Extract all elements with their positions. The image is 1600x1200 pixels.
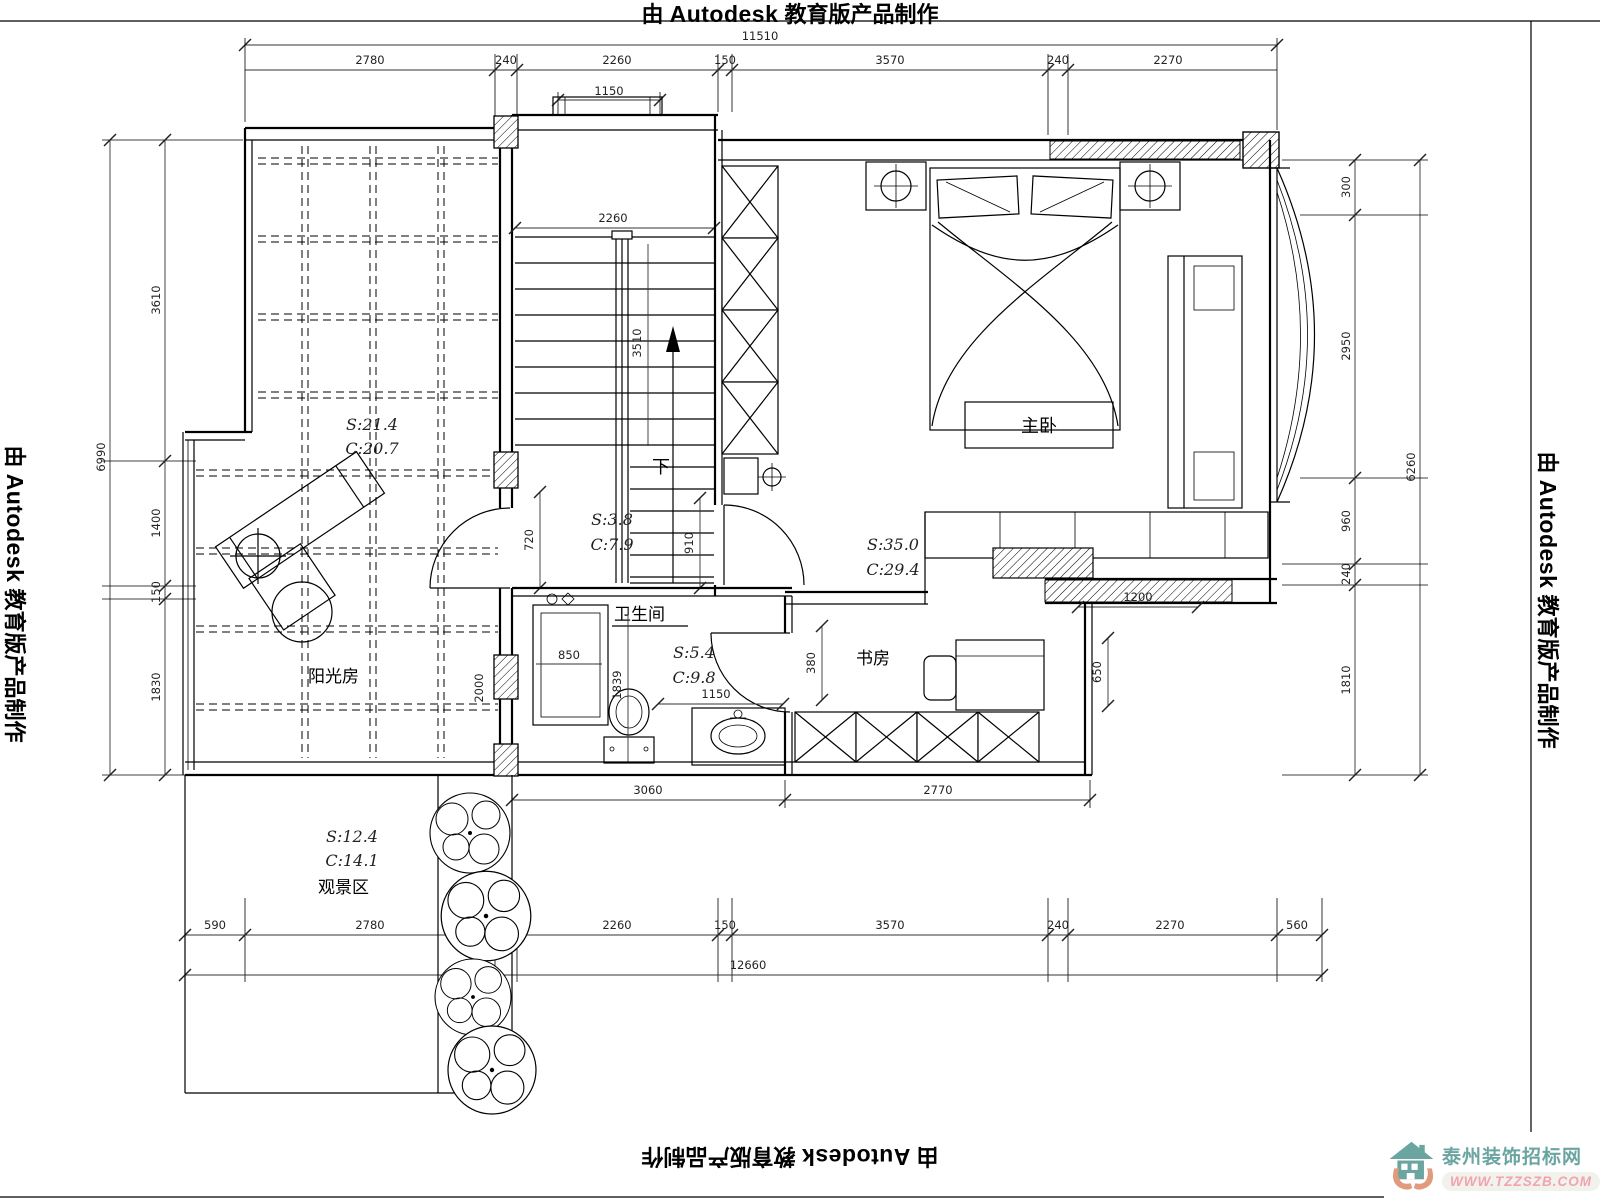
dim-study-door: 380 — [804, 652, 818, 674]
stair-treads — [515, 231, 714, 583]
room-sunroom-label: 阳光房 — [308, 667, 359, 686]
room-master-label: 主卧 — [1021, 416, 1057, 436]
dim-left-total: 6990 — [94, 442, 108, 471]
dim-right-0: 300 — [1339, 176, 1353, 198]
dim-hall-right: 910 — [682, 532, 696, 554]
edu-stamp-bottom: 由 Autodesk 教育版产品制作 — [641, 1142, 938, 1174]
room-study-label: 书房 — [856, 649, 890, 668]
dim-bottom-8: 560 — [1286, 918, 1308, 932]
dim-top-6: 2270 — [1153, 53, 1182, 67]
nightstand-right — [1120, 162, 1180, 210]
room-stairwell-area: S:3.8 — [591, 510, 633, 529]
dim-study-right: 650 — [1090, 661, 1104, 683]
dim-left-0: 3610 — [149, 285, 163, 314]
bay-window — [1270, 140, 1315, 603]
room-scenic-area: S:12.4 C:14.1 观景区 — [185, 775, 536, 1114]
dim-left-2: 150 — [149, 581, 163, 603]
frame-border — [0, 21, 1600, 1197]
dim-bath-door: 1150 — [701, 687, 730, 701]
dim-stair-w: 2260 — [598, 211, 627, 225]
dim-bottom: 590 2780 240 2260 150 3570 240 2270 560 … — [179, 898, 1328, 982]
edu-stamp-right: 由 Autodesk 教育版产品制作 — [1533, 451, 1565, 748]
bedroom-door-arc — [724, 505, 804, 585]
dim-bottom-3: 2260 — [602, 918, 631, 932]
edu-stamp-left: 由 Autodesk 教育版产品制作 — [0, 445, 32, 742]
dim-mid-0: 3060 — [633, 783, 662, 797]
dim-stair-h: 3510 — [630, 328, 644, 357]
dim-mid-bottom: 3060 2770 — [506, 780, 1096, 808]
edu-stamp-suffix: 教育版产品制作 — [785, 2, 939, 27]
dim-top-total: 11510 — [742, 29, 779, 43]
room-scenic-area-area: S:12.4 — [326, 827, 378, 846]
site-logo: 泰州装饰招标网 WWW.TZZSZB.COM — [1384, 1132, 1600, 1200]
floor-plan: 11510 2780 240 2260 150 3570 240 2270 11… — [0, 0, 1600, 1200]
edu-stamp-brand: Autodesk — [670, 1, 779, 27]
room-bathroom-label: 卫生间 — [614, 605, 665, 624]
dim-bottom-7: 2270 — [1155, 918, 1184, 932]
room-scenic-area-circ: C:14.1 — [325, 851, 378, 870]
edu-stamp-prefix: 由 — [641, 2, 663, 27]
room-bathroom-area: S:5.4 — [673, 643, 715, 662]
dim-bottom-5: 3570 — [875, 918, 904, 932]
dim-right-total: 6260 — [1404, 452, 1418, 481]
sink — [692, 708, 785, 765]
room-sunroom: S:21.4 C:20.7 阳光房 — [183, 115, 512, 775]
dim-bath-shower: 850 — [558, 648, 580, 662]
dim-top: 11510 2780 240 2260 150 3570 240 2270 11… — [239, 29, 1283, 135]
dim-bottom-6: 240 — [1047, 918, 1069, 932]
room-sunroom-area: S:21.4 — [346, 415, 398, 434]
logo-house-hands-icon — [1388, 1136, 1438, 1196]
dim-bottom-4: 150 — [714, 918, 736, 932]
bed: 主卧 — [930, 168, 1120, 448]
study-wardrobe — [795, 712, 1039, 762]
room-master-bedroom: 主卧 — [718, 132, 1315, 613]
trees — [430, 793, 536, 1114]
dim-top-0: 2780 — [355, 53, 384, 67]
dim-mid-1: 2770 — [923, 783, 952, 797]
stair-down-arrow — [666, 326, 680, 583]
nightstand-left — [866, 162, 926, 210]
dim-right-4: 1810 — [1339, 665, 1353, 694]
dim-left: 3610 1400 150 1830 6990 — [94, 134, 243, 781]
room-stairwell-circ: C:7.9 — [590, 535, 633, 554]
dim-top-2: 2260 — [602, 53, 631, 67]
room-sunroom-circ: C:20.7 — [345, 439, 399, 458]
stair-down-label: 下 — [652, 457, 670, 477]
dim-bed-cabinet: 1200 — [1123, 590, 1152, 604]
dim-left-1: 1400 — [149, 508, 163, 537]
lounge-chair — [216, 452, 417, 636]
dim-right-1: 2950 — [1339, 331, 1353, 360]
dim-top-5: 240 — [1047, 53, 1069, 67]
edu-stamp-top: 由 Autodesk 教育版产品制作 — [641, 0, 938, 29]
dim-bath-wall: 2000 — [472, 673, 486, 702]
site-url: WWW.TZZSZB.COM — [1442, 1172, 1600, 1191]
room-bathroom-circ: C:9.8 — [672, 668, 715, 687]
column-target-icon — [758, 463, 786, 491]
dim-right-3: 240 — [1339, 563, 1353, 585]
dim-right-2: 960 — [1339, 510, 1353, 532]
room-master-circ: C:29.4 — [866, 560, 919, 579]
dim-left-3: 1830 — [149, 672, 163, 701]
tv-cabinet — [925, 512, 1268, 578]
dim-top-3: 150 — [714, 53, 736, 67]
desk — [924, 640, 1044, 710]
dim-bottom-1: 2780 — [355, 918, 384, 932]
dim-top-window: 1150 — [594, 84, 623, 98]
dim-hall-left: 720 — [522, 529, 536, 551]
dim-bottom-0: 590 — [204, 918, 226, 932]
room-master-area: S:35.0 — [867, 535, 919, 554]
dim-bottom-total: 12660 — [730, 958, 767, 972]
dim-bath-h: 1839 — [610, 670, 624, 699]
site-name: 泰州装饰招标网 — [1442, 1142, 1600, 1169]
dim-top-4: 3570 — [875, 53, 904, 67]
wall-hatch-blocks — [494, 116, 518, 776]
room-bathroom: 卫生间 S:5.4 C:9.8 1150 850 1839 2000 — [472, 593, 792, 775]
room-scenic-area-label: 观景区 — [318, 878, 369, 897]
bedroom-cabinet — [1168, 256, 1242, 508]
dim-top-1: 240 — [495, 53, 517, 67]
